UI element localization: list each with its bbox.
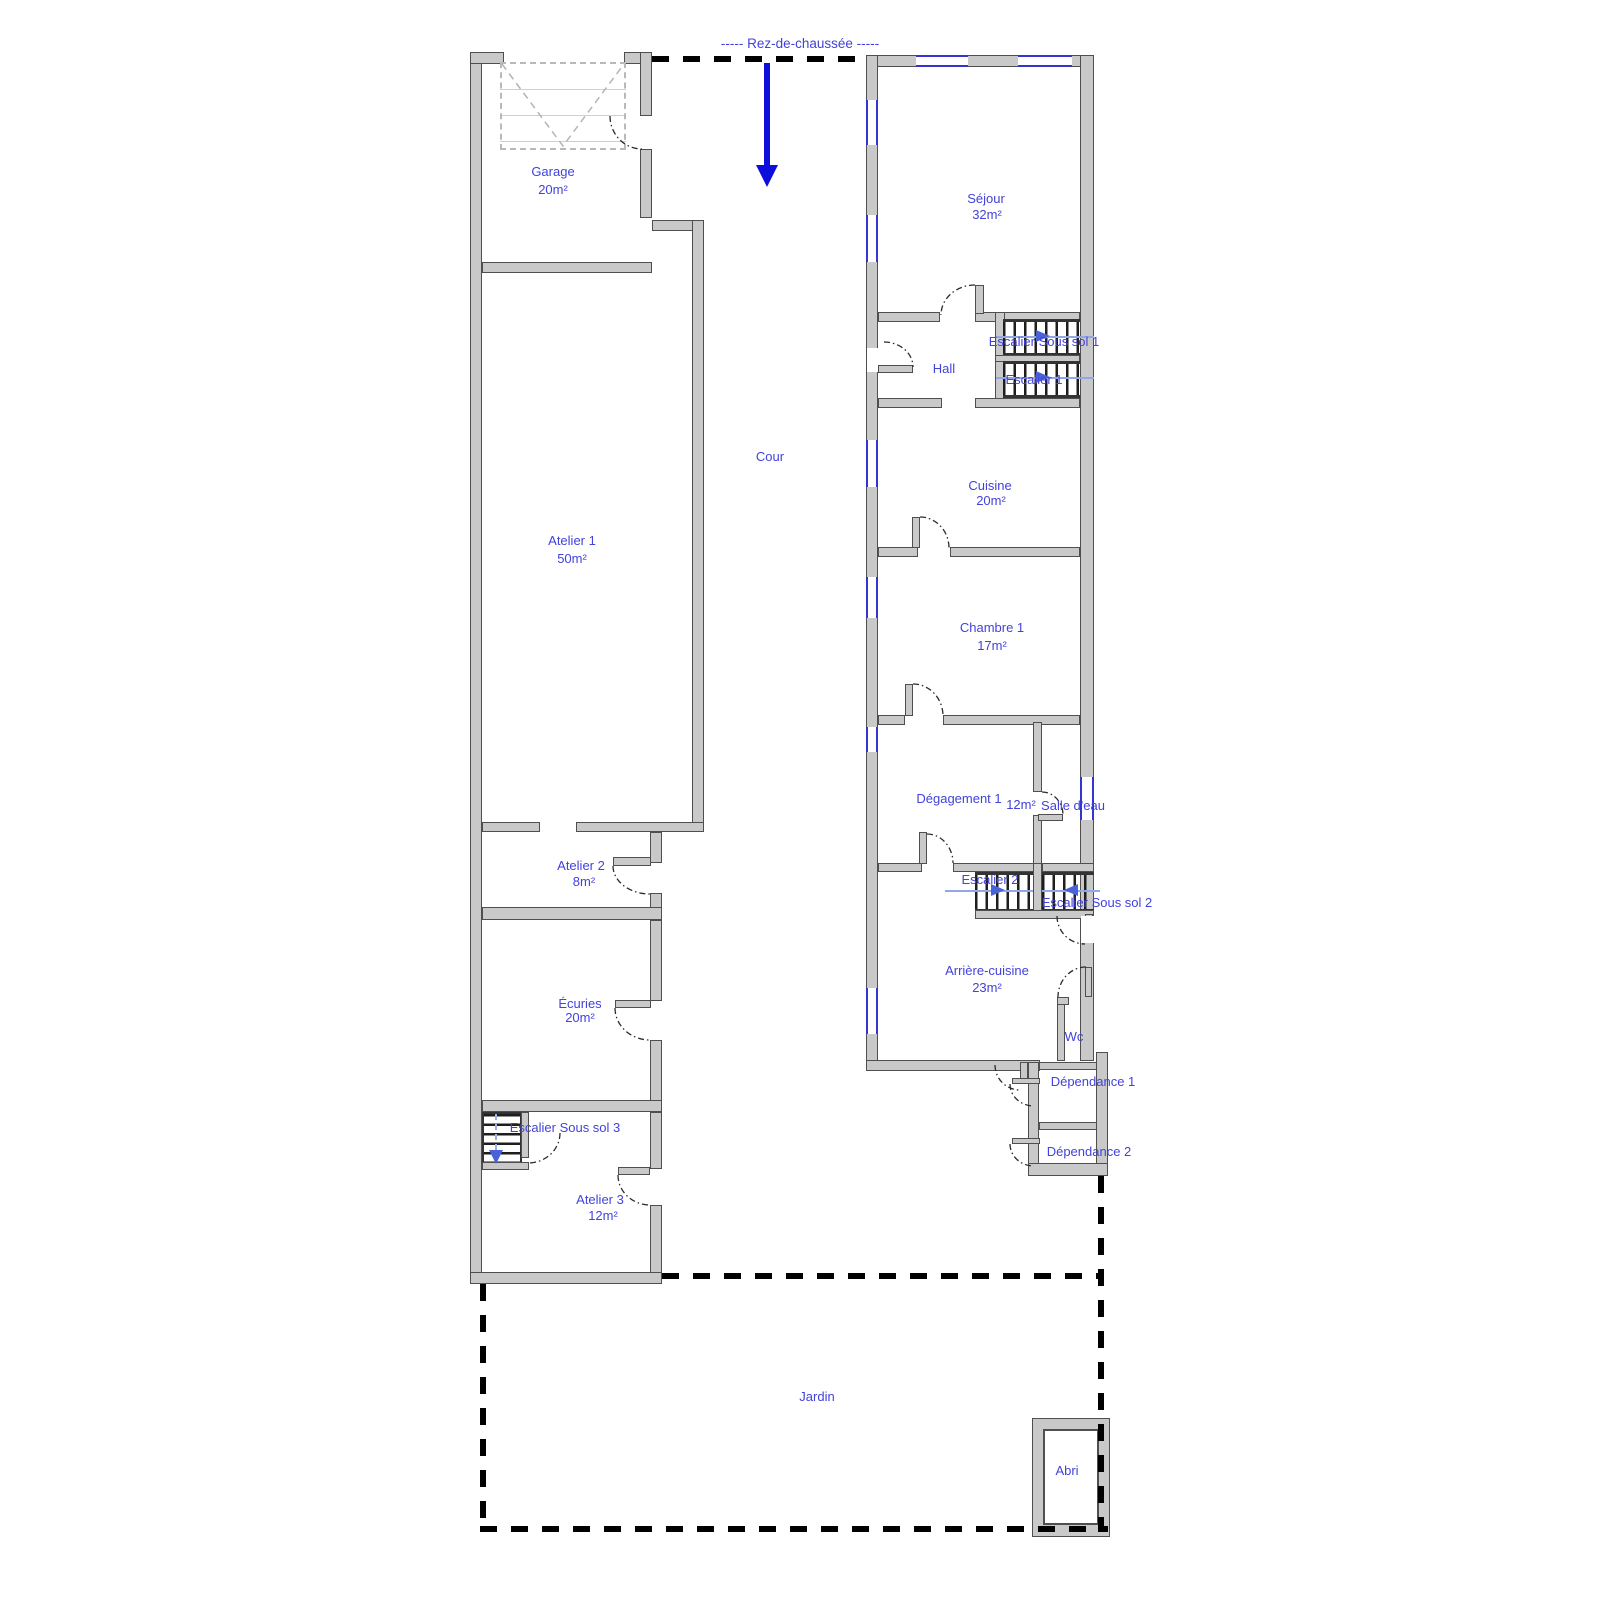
door-arc <box>1058 967 1086 997</box>
garage-door-icon <box>500 62 626 150</box>
door-leaf <box>618 1167 650 1175</box>
wall <box>470 52 504 64</box>
room-label-chambre1: Chambre 1 <box>960 621 1024 635</box>
room-area-chambre1: 17m² <box>977 639 1007 653</box>
garden-boundary-left <box>480 1284 486 1532</box>
room-area-ecuries: 20m² <box>565 1011 595 1025</box>
wall <box>650 893 662 908</box>
door-leaf <box>1038 814 1063 821</box>
room-area-sejour: 32m² <box>972 208 1002 222</box>
wall <box>470 1272 662 1284</box>
floor-title: ----- Rez-de-chaussée ----- <box>721 37 879 51</box>
stair-label-sous-sol-2: Escalier Sous sol 2 <box>1042 896 1153 910</box>
room-label-cuisine: Cuisine <box>968 479 1011 493</box>
wall <box>1057 997 1069 1005</box>
door-leaf <box>919 832 927 864</box>
entrance-arrow-head <box>756 165 778 187</box>
door-arc <box>613 866 650 894</box>
area-label-jardin: Jardin <box>799 1390 834 1404</box>
wall <box>878 715 905 725</box>
door-leaf <box>912 517 920 548</box>
wall <box>482 1100 662 1112</box>
room-label-degagement1: Dégagement 1 <box>916 792 1001 806</box>
wall <box>640 52 652 116</box>
stair-arrow-down-icon <box>489 1150 503 1164</box>
door-arc <box>941 285 975 315</box>
wall <box>1039 1062 1097 1070</box>
door-leaf <box>613 857 651 866</box>
wall <box>1033 722 1042 792</box>
window <box>1018 55 1072 67</box>
door-arc <box>1010 1144 1034 1166</box>
door-leaf <box>1085 967 1092 997</box>
room-area-arriere-cuisine: 23m² <box>972 981 1002 995</box>
wall <box>1028 1163 1108 1176</box>
door-leaf <box>975 285 984 314</box>
wall <box>943 715 1080 725</box>
garden-boundary-bottom <box>480 1526 1108 1532</box>
door-arc <box>927 834 953 863</box>
room-area-degagement1: 12m² <box>1006 798 1036 812</box>
room-area-atelier1: 50m² <box>557 552 587 566</box>
stair-direction-line <box>945 890 1033 892</box>
wall <box>975 398 1080 408</box>
entrance-arrow <box>764 63 770 167</box>
wall <box>878 547 918 557</box>
wall <box>878 312 940 322</box>
room-label-hall: Hall <box>933 362 955 376</box>
door-leaf <box>905 684 913 716</box>
wall <box>482 262 652 273</box>
window <box>866 100 878 145</box>
window <box>866 215 878 262</box>
room-area-cuisine: 20m² <box>976 494 1006 508</box>
door-leaf <box>615 1000 651 1008</box>
door-arc <box>615 1008 650 1040</box>
wall <box>576 822 704 832</box>
courtyard-boundary <box>662 1273 1099 1279</box>
door-arc <box>920 517 949 548</box>
floor-plan: ----- Rez-de-chaussée ----- <box>0 0 1600 1600</box>
door-arc <box>1010 1084 1034 1106</box>
wall <box>650 920 662 1001</box>
stair-label-escalier-2: Escalier 2 <box>961 873 1018 887</box>
room-label-dependance2: Dépendance 2 <box>1047 1145 1132 1159</box>
window <box>866 727 878 752</box>
wall <box>878 863 922 872</box>
room-label-dependance1: Dépendance 1 <box>1051 1075 1136 1089</box>
wall <box>1042 863 1094 872</box>
window <box>916 55 968 67</box>
wall <box>953 863 1037 872</box>
window <box>866 440 878 487</box>
door-arc <box>528 1133 560 1163</box>
room-area-atelier3: 12m² <box>588 1209 618 1223</box>
door-arc <box>913 684 943 716</box>
wall <box>650 1040 662 1101</box>
room-label-wc: Wc <box>1065 1030 1084 1044</box>
wall <box>650 832 662 863</box>
wall <box>640 149 652 218</box>
stair-label-escalier-1: Escalier 1 <box>1005 373 1062 387</box>
wall <box>950 547 1080 557</box>
door-opening <box>867 348 878 372</box>
property-boundary-top <box>652 56 866 62</box>
room-label-ecuries: Écuries <box>558 997 601 1011</box>
window <box>866 988 878 1034</box>
door-arc <box>884 342 913 367</box>
wall <box>1039 1122 1097 1130</box>
window <box>866 577 878 618</box>
wall <box>1033 815 1042 866</box>
stair-label-sous-sol-1: Escalier Sous sol 1 <box>989 335 1100 349</box>
area-label-cour: Cour <box>756 450 784 464</box>
room-label-sejour: Séjour <box>967 192 1005 206</box>
stair-label-sous-sol-3: Escalier Sous sol 3 <box>510 1121 621 1135</box>
wall <box>866 55 878 1071</box>
room-label-atelier3: Atelier 3 <box>576 1193 624 1207</box>
room-label-arriere-cuisine: Arrière-cuisine <box>945 964 1029 978</box>
room-area-atelier2: 8m² <box>573 875 595 889</box>
room-area-garage: 20m² <box>538 183 568 197</box>
room-label-atelier1: Atelier 1 <box>548 534 596 548</box>
wall <box>482 822 540 832</box>
door-arc <box>610 116 642 149</box>
area-label-abri: Abri <box>1055 1464 1078 1478</box>
stair-direction-line <box>495 1114 497 1154</box>
wall <box>482 907 662 920</box>
wall <box>650 1112 662 1169</box>
garden-boundary-right <box>1098 1176 1104 1532</box>
room-label-atelier2: Atelier 2 <box>557 859 605 873</box>
room-label-garage: Garage <box>531 165 574 179</box>
wall <box>878 398 942 408</box>
wall <box>692 220 704 832</box>
wall <box>470 52 482 1284</box>
door-arc <box>1057 916 1085 944</box>
room-label-salle-deau: Salle d'eau <box>1041 799 1105 813</box>
